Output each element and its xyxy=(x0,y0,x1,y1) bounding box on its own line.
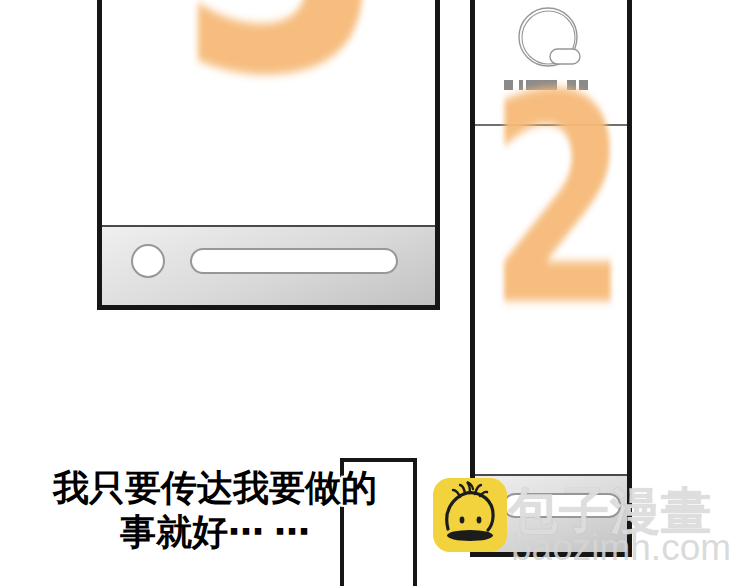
comic-page: 3 2 我只要传达我要做的 事就好⋯ ⋯ xyxy=(0,0,750,586)
device-bottom-bar xyxy=(475,474,627,552)
device-pill-slot xyxy=(190,248,398,274)
panel-divider-line xyxy=(475,124,627,126)
device-circle-button xyxy=(131,244,165,278)
speech-caption: 我只要传达我要做的 事就好⋯ ⋯ xyxy=(28,466,402,554)
redacted-name-dashes xyxy=(504,80,588,90)
device-pill-slot xyxy=(503,493,621,518)
speech-line-2: 事就好⋯ ⋯ xyxy=(28,510,402,554)
speech-line-1: 我只要传达我要做的 xyxy=(28,466,402,510)
circle-scribble-avatar-icon xyxy=(515,6,585,70)
device-bottom-bar xyxy=(102,225,435,305)
